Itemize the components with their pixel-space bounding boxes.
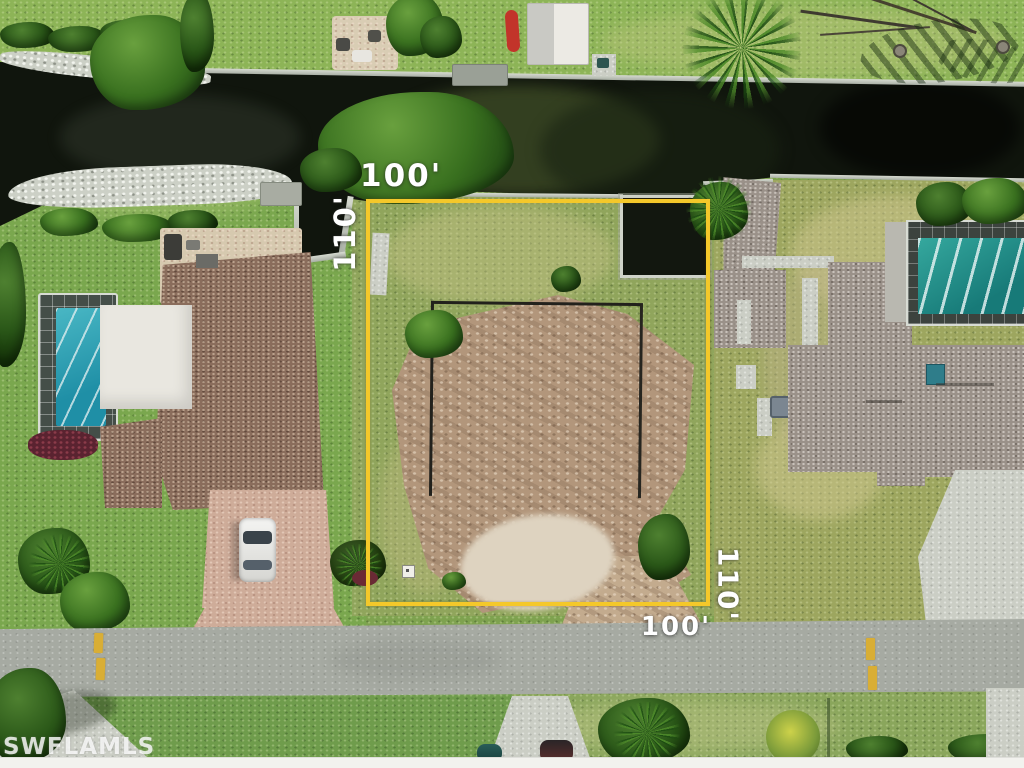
roof-seam-1 (936, 383, 994, 386)
dimension-label-left: 110' (328, 193, 362, 273)
utility-line (827, 698, 830, 758)
red-mulch-bed (28, 430, 98, 460)
dimension-label-right: 110' (712, 545, 745, 625)
car-windshield (243, 531, 272, 544)
dimension-label-bottom: 100' (636, 612, 716, 642)
roof-seam-2 (866, 400, 902, 403)
northeast-equipment (597, 58, 609, 68)
road-yellow-dash-right-2 (868, 666, 877, 690)
patio-table (352, 50, 372, 62)
dimension-label-top: 100' (360, 158, 440, 194)
south-palm (612, 702, 682, 764)
palm-trunk-dot-2 (996, 40, 1010, 54)
road-yellow-dash-right-1 (866, 638, 875, 660)
left-house-flat-roof (100, 305, 192, 409)
dock-north (452, 64, 508, 86)
mls-watermark: SWFLAMLS (3, 734, 155, 760)
roof-skylight (926, 364, 945, 385)
left-house-roof-wing (100, 418, 162, 508)
road-yellow-dash-left-1 (94, 633, 104, 653)
point-bushes-1 (40, 208, 98, 236)
parked-white-car (239, 518, 276, 582)
patio-chair-2 (368, 30, 381, 42)
right-pool (918, 238, 1024, 314)
north-trees-2 (420, 16, 462, 58)
right-pad-1 (737, 300, 751, 344)
water-tree-shadow (820, 78, 1020, 178)
car-rear-window (243, 560, 272, 570)
road-yellow-dash-left-2 (96, 658, 106, 680)
right-hedge-2 (962, 178, 1024, 224)
front-yard-palm-cluster-2 (60, 572, 130, 632)
palm-trunk-dot-1 (893, 44, 907, 58)
lot-corner-overhang-tree-2 (300, 148, 362, 192)
dock-point (260, 182, 302, 206)
southeast-driveway (986, 688, 1024, 758)
lot-boundary-outline (366, 199, 710, 606)
left-house-chimney (196, 254, 218, 268)
patio-grill (164, 234, 182, 260)
left-pool (56, 308, 106, 426)
patio-table-left (186, 240, 200, 250)
right-pad-2 (736, 365, 756, 389)
road-dark-patch (330, 640, 500, 680)
south-yellow-palm (766, 710, 820, 764)
right-walkway-vertical (802, 278, 818, 348)
right-walkway-horizontal (742, 256, 834, 268)
shed-roof (527, 3, 589, 65)
patio-chair-1 (336, 38, 350, 51)
aerial-photo: 100' 110' 110' 100' SWFLAMLS (0, 0, 1024, 768)
north-hedge-1 (0, 22, 55, 48)
